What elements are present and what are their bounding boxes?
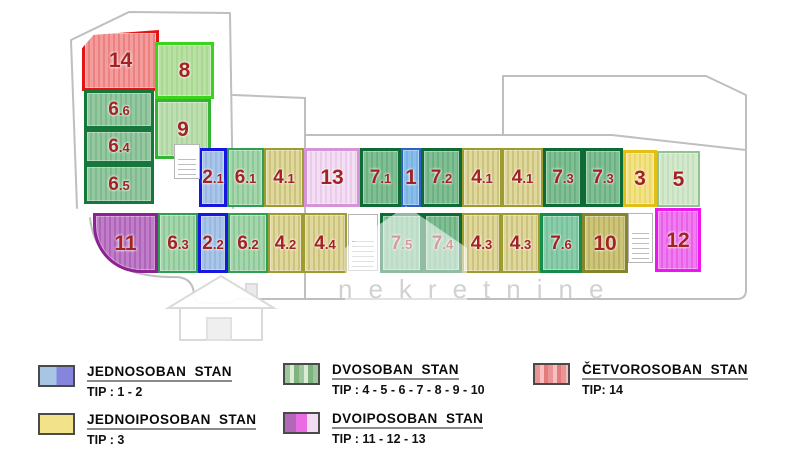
legend-text: JEDNOIPOSOBAN STANTIP : 3	[87, 411, 256, 447]
legend-swatch	[283, 412, 320, 434]
legend-text: DVOSOBAN STANTIP : 4 - 5 - 6 - 7 - 8 - 9…	[332, 361, 485, 397]
legend-tip: TIP: 14	[582, 383, 748, 397]
legend-text: JEDNOSOBAN STANTIP : 1 - 2	[87, 363, 232, 399]
legend-text: DVOIPOSOBAN STANTIP : 11 - 12 - 13	[332, 410, 483, 446]
legend: JEDNOSOBAN STANTIP : 1 - 2JEDNOIPOSOBAN …	[0, 0, 800, 459]
legend-swatch	[283, 363, 320, 385]
legend-item-5: ČETVOROSOBAN STANTIP: 14	[533, 361, 748, 397]
legend-title: ČETVOROSOBAN STAN	[582, 362, 748, 380]
legend-item-1: JEDNOSOBAN STANTIP : 1 - 2	[38, 363, 232, 399]
legend-swatch	[533, 363, 570, 385]
legend-text: ČETVOROSOBAN STANTIP: 14	[582, 361, 748, 397]
legend-swatch	[38, 413, 75, 435]
legend-tip: TIP : 3	[87, 433, 256, 447]
legend-tip: TIP : 11 - 12 - 13	[332, 432, 483, 446]
legend-item-2: JEDNOIPOSOBAN STANTIP : 3	[38, 411, 256, 447]
floor-plan: 1486.66.46.592.16.14.1137.117.24.14.17.3…	[0, 0, 800, 459]
legend-item-3: DVOSOBAN STANTIP : 4 - 5 - 6 - 7 - 8 - 9…	[283, 361, 485, 397]
legend-title: DVOSOBAN STAN	[332, 362, 459, 380]
legend-tip: TIP : 4 - 5 - 6 - 7 - 8 - 9 - 10	[332, 383, 485, 397]
legend-tip: TIP : 1 - 2	[87, 385, 232, 399]
legend-item-4: DVOIPOSOBAN STANTIP : 11 - 12 - 13	[283, 410, 483, 446]
legend-swatch	[38, 365, 75, 387]
legend-title: DVOIPOSOBAN STAN	[332, 411, 483, 429]
legend-title: JEDNOSOBAN STAN	[87, 364, 232, 382]
legend-title: JEDNOIPOSOBAN STAN	[87, 412, 256, 430]
